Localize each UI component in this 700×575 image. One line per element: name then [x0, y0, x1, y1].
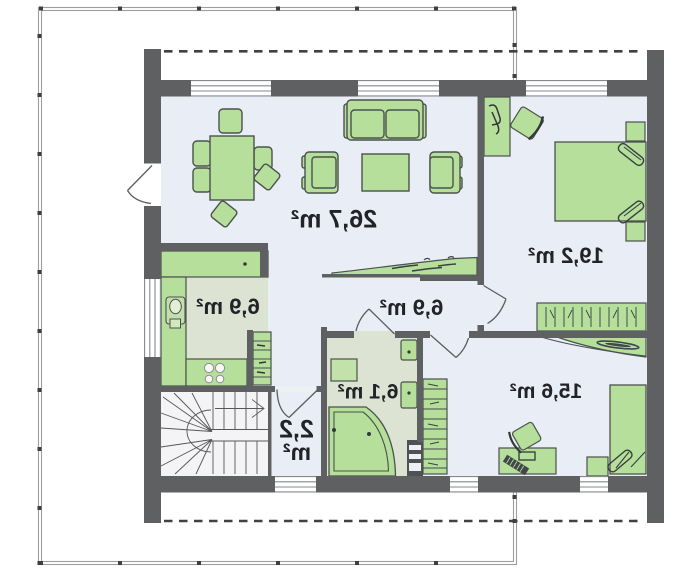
- svg-text:6,9 m²: 6,9 m²: [196, 294, 260, 319]
- svg-text:26,7 m²: 26,7 m²: [291, 206, 377, 234]
- svg-text:m²: m²: [283, 439, 311, 465]
- svg-text:6,9 m²: 6,9 m²: [380, 295, 444, 320]
- svg-text:19,2 m²: 19,2 m²: [528, 243, 604, 268]
- svg-text:6,1 m²: 6,1 m²: [338, 381, 399, 404]
- svg-text:15,6 m²: 15,6 m²: [510, 380, 582, 403]
